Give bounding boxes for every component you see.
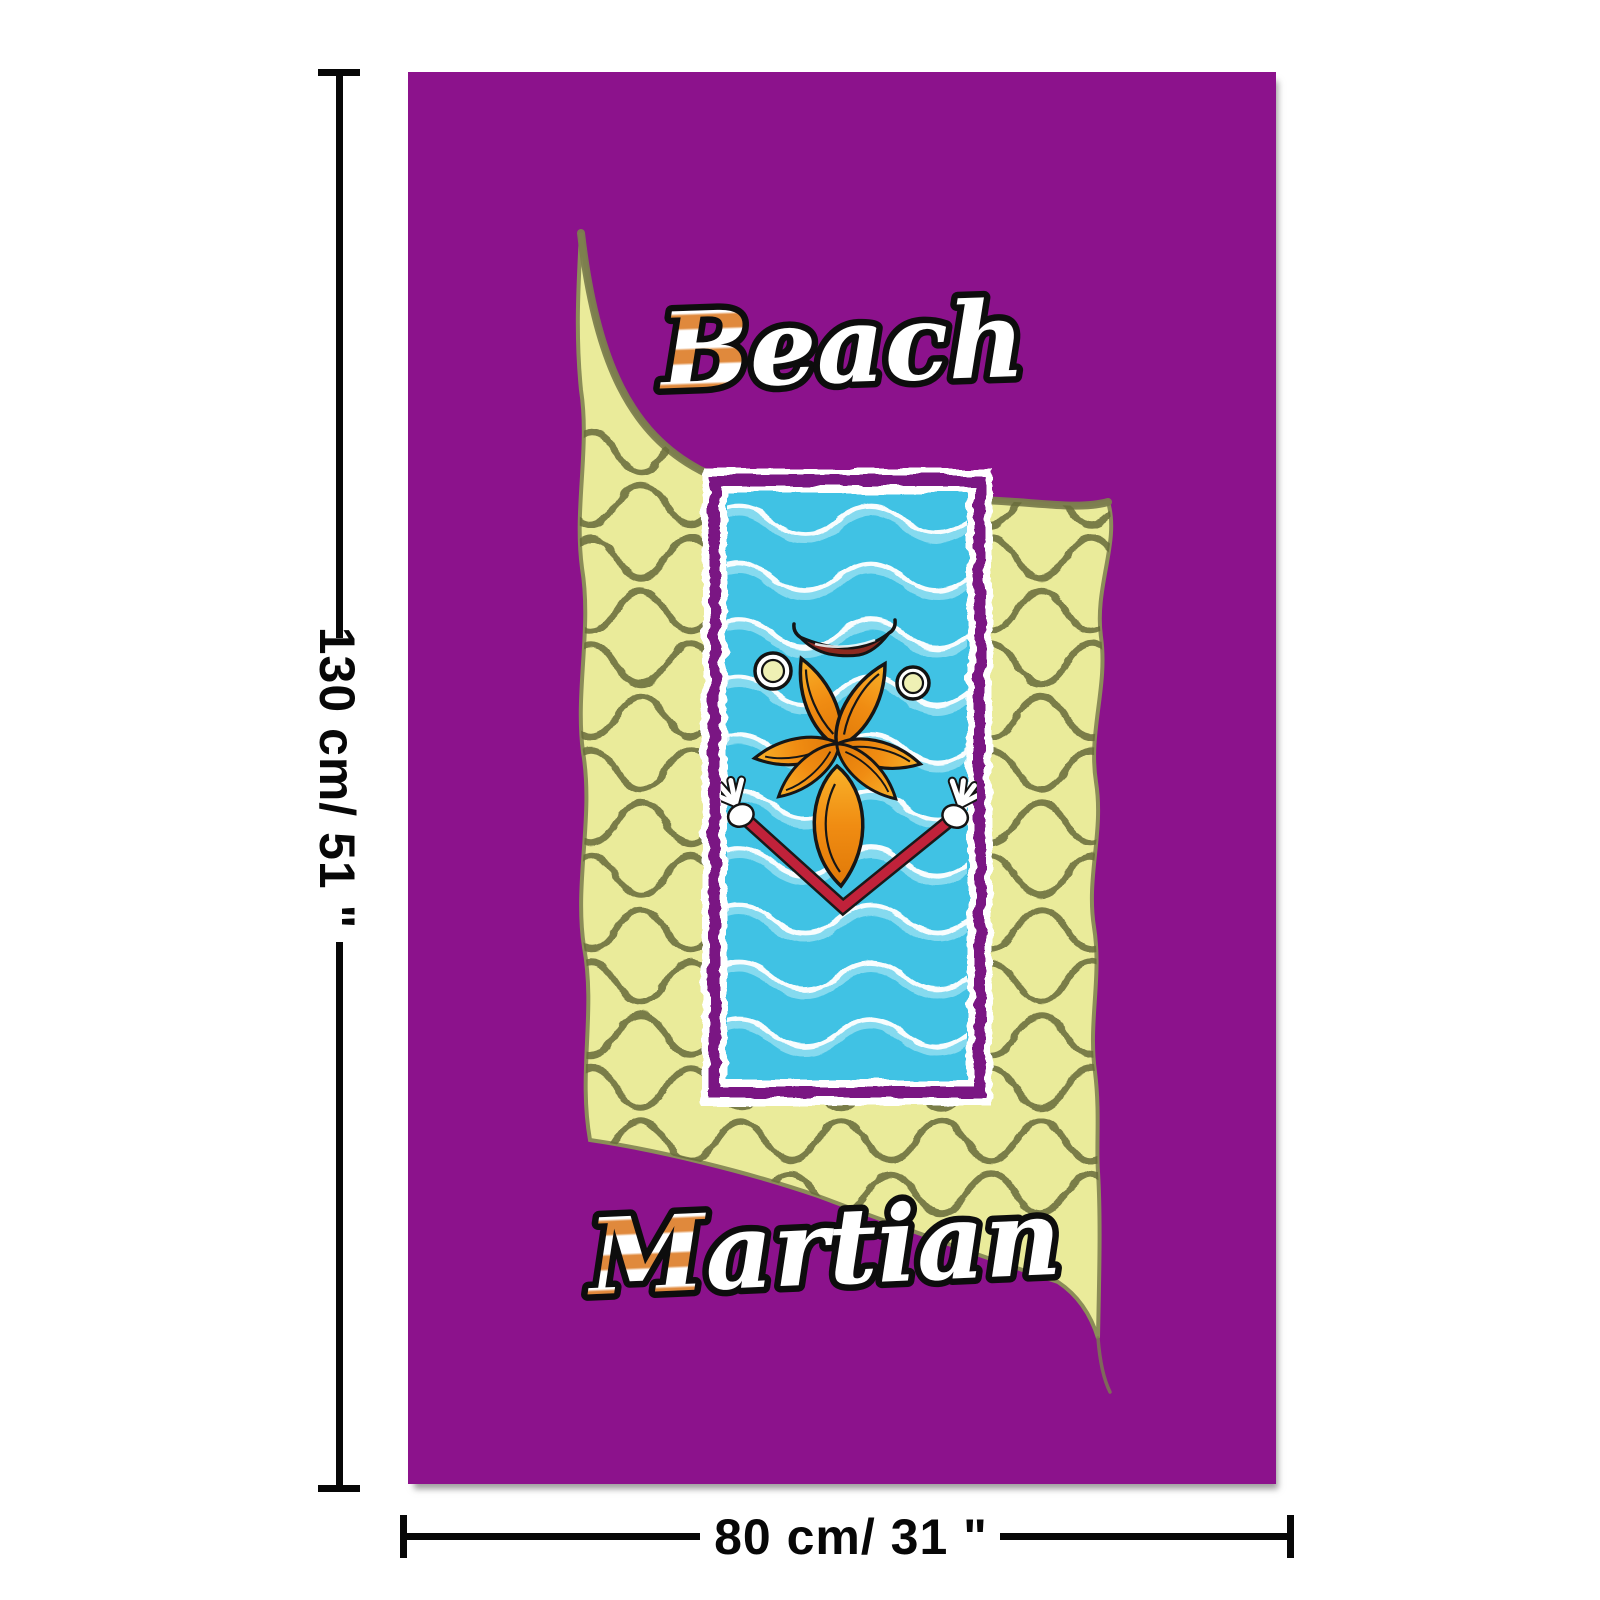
- right-eye-icon: [897, 667, 929, 699]
- width-dimension-cap-left: [400, 1515, 407, 1558]
- height-dimension-cap-bottom: [318, 1485, 360, 1492]
- height-dimension-label: 130 cm/ 51 ": [308, 627, 366, 930]
- beach-label-initial: B: [656, 286, 752, 413]
- width-dimension-line-right: [1000, 1533, 1290, 1540]
- width-dimension-line-left: [404, 1533, 700, 1540]
- beach-label-rest: each: [747, 277, 1026, 411]
- height-dimension-line-lower: [336, 942, 343, 1488]
- beach-towel: Beach Martian: [408, 72, 1276, 1484]
- towel-design-svg: Beach Martian: [408, 72, 1276, 1484]
- product-mockup-canvas: Beach Martian 130 cm/ 51 " 80 cm/ 31 ": [0, 0, 1600, 1600]
- left-eye-icon: [755, 653, 791, 689]
- martian-label-rest: artian: [702, 1175, 1063, 1314]
- beach-label: Beach: [656, 277, 1027, 414]
- height-dimension-cap-top: [318, 69, 360, 76]
- martian-label-initial: M: [583, 1190, 710, 1319]
- martian-label: Martian: [583, 1175, 1063, 1320]
- width-dimension-cap-right: [1287, 1515, 1294, 1558]
- center-panel: [702, 468, 992, 1105]
- height-dimension-line-upper: [336, 72, 343, 638]
- width-dimension-label: 80 cm/ 31 ": [714, 1508, 988, 1566]
